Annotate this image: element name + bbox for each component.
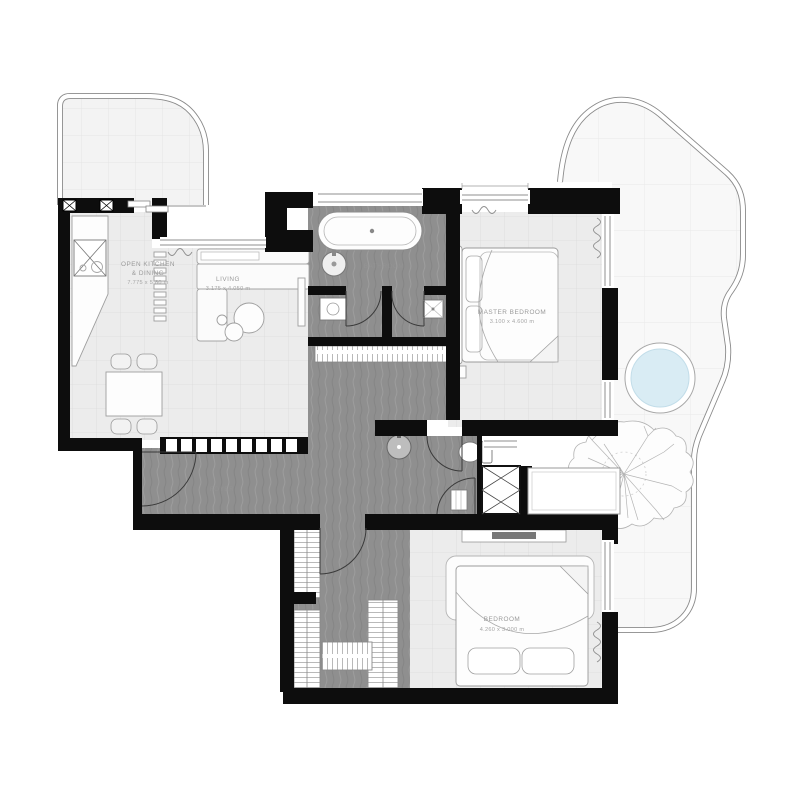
- tv-console: [298, 278, 305, 326]
- window: [483, 438, 518, 450]
- floor-plan-page: OPEN KITCHEN & DINING 7.775 x 5.80 m LIV…: [0, 0, 800, 800]
- foyer-label: FOYER: [210, 486, 235, 493]
- window: [460, 183, 530, 204]
- corridor-floor: [308, 420, 375, 530]
- kitchen-dimensions: 7.775 x 5.80 m: [127, 280, 168, 286]
- floor-plan: OPEN KITCHEN & DINING 7.775 x 5.80 m LIV…: [0, 0, 800, 800]
- bathtub: [318, 212, 422, 250]
- column: [63, 200, 76, 211]
- duct-shaft: [482, 466, 520, 514]
- kitchen-label-2: & DINING: [132, 270, 164, 277]
- wardrobe: [294, 528, 320, 598]
- planter: [528, 468, 620, 514]
- living-dimensions: 3.175 x 4.050 m: [206, 286, 251, 292]
- cabinet: [451, 490, 467, 510]
- bedroom-label: BEDROOM: [484, 616, 521, 623]
- column: [100, 200, 113, 211]
- bedroom-dimensions: 4.260 x 3.000 m: [480, 627, 525, 633]
- balcony-floor: [60, 96, 206, 205]
- chair: [111, 419, 131, 434]
- window: [160, 237, 266, 248]
- chair: [137, 419, 157, 434]
- pillow: [468, 648, 520, 674]
- bedroom-tv-console: [462, 530, 566, 542]
- washing-machine: [320, 298, 346, 320]
- kitchen-label: OPEN KITCHEN: [121, 261, 175, 268]
- bench: [322, 642, 372, 670]
- master-bed: [450, 246, 558, 364]
- shoe-cabinet: [166, 439, 297, 452]
- wardrobe: [294, 610, 320, 688]
- balcony-terrace: [60, 96, 206, 206]
- hall-dresser: [315, 346, 447, 362]
- master-bedroom-label: MASTER BEDROOM: [478, 309, 546, 316]
- master-bedroom-dimensions: 3.100 x 4.600 m: [490, 319, 535, 325]
- chair: [111, 354, 131, 369]
- shower: [423, 300, 443, 318]
- window: [602, 214, 614, 288]
- window: [313, 189, 423, 206]
- pillow: [522, 648, 574, 674]
- living-label: LIVING: [216, 276, 240, 283]
- chair: [137, 354, 157, 369]
- bathroom-label: BATHROOM: [364, 263, 404, 270]
- window: [602, 540, 614, 612]
- wardrobe: [368, 600, 398, 688]
- pool: [625, 343, 695, 413]
- terrace-door: [602, 380, 614, 420]
